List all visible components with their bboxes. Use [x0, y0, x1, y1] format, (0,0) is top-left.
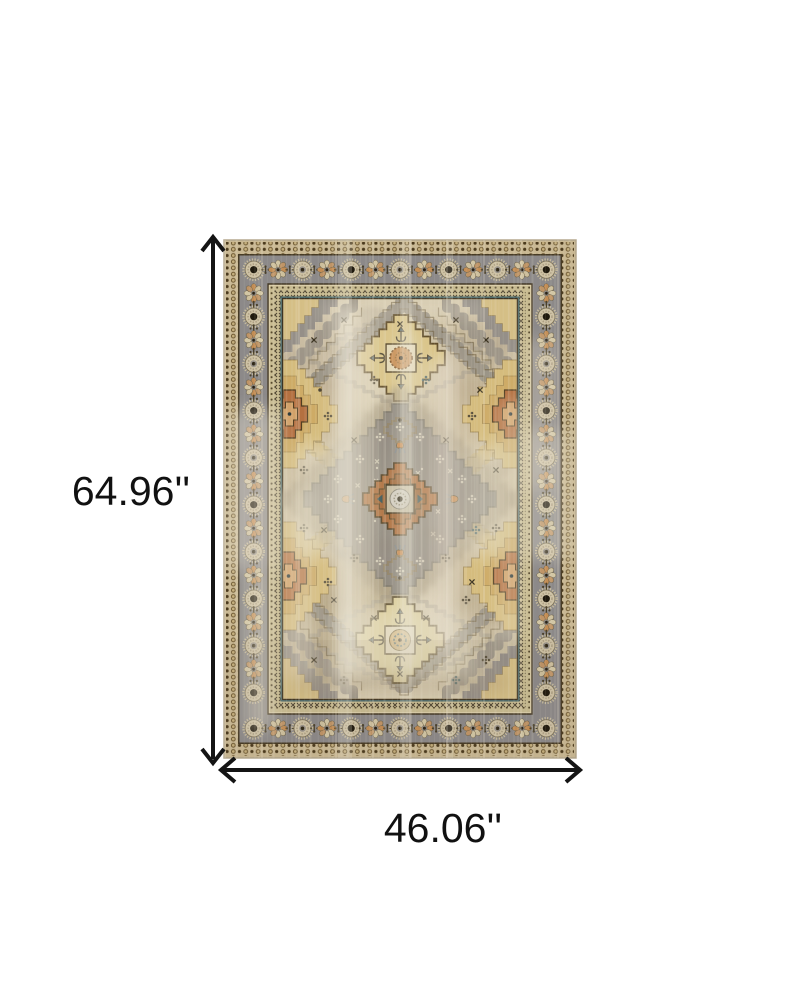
- svg-text:64.96'': 64.96'': [72, 468, 190, 514]
- svg-text:46.06'': 46.06'': [384, 805, 502, 851]
